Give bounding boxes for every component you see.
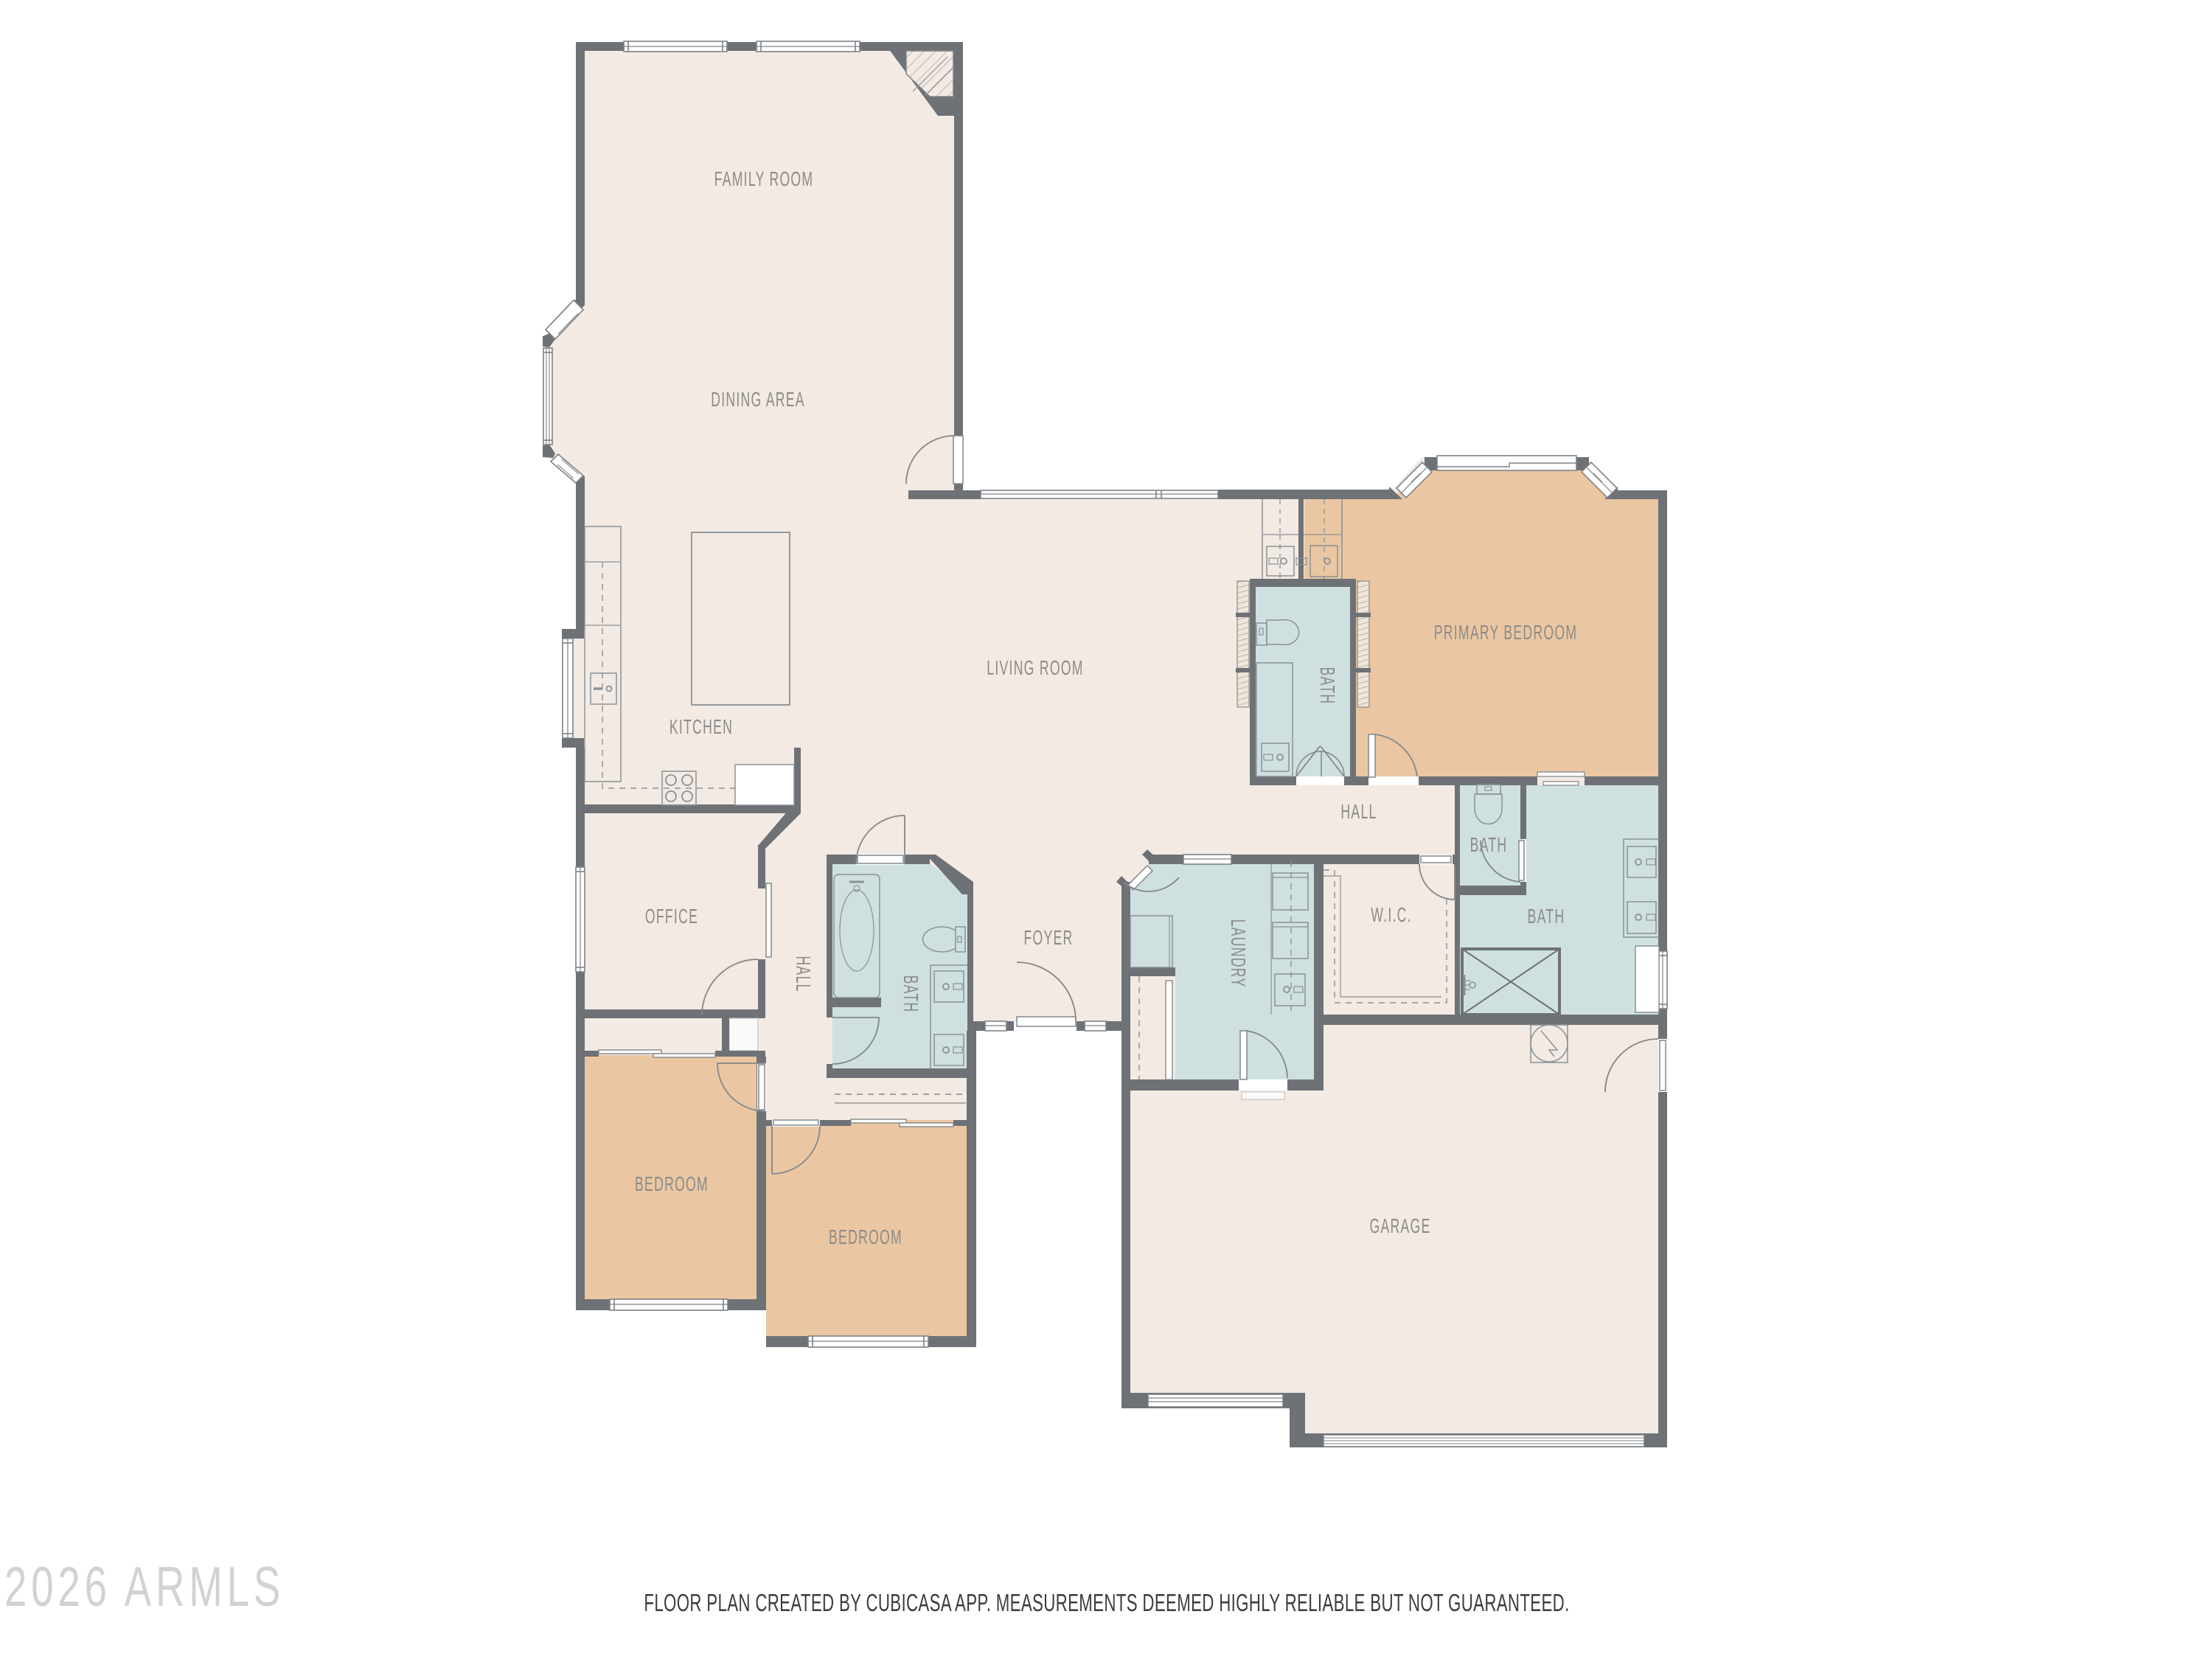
- svg-text:W.I.C.: W.I.C.: [1371, 903, 1412, 926]
- svg-text:GARAGE: GARAGE: [1369, 1214, 1430, 1237]
- svg-text:LIVING ROOM: LIVING ROOM: [987, 656, 1083, 679]
- svg-text:HALL: HALL: [792, 956, 815, 992]
- svg-text:BATH: BATH: [1470, 833, 1508, 856]
- svg-text:FOYER: FOYER: [1023, 926, 1073, 949]
- svg-text:BEDROOM: BEDROOM: [635, 1172, 709, 1195]
- svg-text:FAMILY ROOM: FAMILY ROOM: [714, 167, 814, 190]
- svg-text:FLOOR PLAN CREATED BY CUBICASA: FLOOR PLAN CREATED BY CUBICASA APP. MEAS…: [644, 1590, 1569, 1616]
- svg-text:HALL: HALL: [1340, 800, 1377, 823]
- svg-text:BATH: BATH: [1528, 905, 1565, 928]
- svg-text:BATH: BATH: [900, 975, 922, 1013]
- svg-text:2026 ARMLS: 2026 ARMLS: [4, 1556, 285, 1618]
- svg-text:PRIMARY BEDROOM: PRIMARY BEDROOM: [1434, 621, 1578, 644]
- svg-text:KITCHEN: KITCHEN: [669, 715, 733, 738]
- svg-text:DINING AREA: DINING AREA: [711, 388, 805, 411]
- svg-text:BATH: BATH: [1316, 667, 1339, 705]
- svg-text:OFFICE: OFFICE: [645, 905, 698, 928]
- svg-text:BEDROOM: BEDROOM: [829, 1225, 902, 1248]
- svg-text:LAUNDRY: LAUNDRY: [1227, 919, 1250, 988]
